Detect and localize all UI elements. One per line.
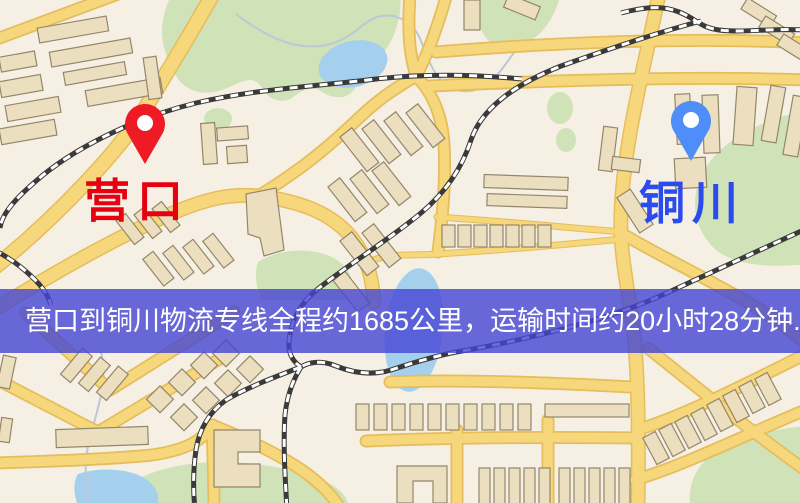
origin-pin-icon[interactable] (123, 102, 167, 166)
pin-hole (683, 112, 699, 128)
map-canvas: 营口 铜川 营口到铜川物流专线全程约1685公里，运输时间约20小时28分钟. (0, 0, 800, 503)
destination-pin-icon[interactable] (669, 99, 713, 163)
route-info-banner: 营口到铜川物流专线全程约1685公里，运输时间约20小时28分钟. (0, 289, 800, 353)
red-map-pin (125, 104, 165, 164)
route-info-text: 营口到铜川物流专线全程约1685公里，运输时间约20小时28分钟. (25, 306, 800, 336)
pin-hole (137, 115, 153, 131)
destination-city-label: 铜川 (639, 180, 745, 226)
origin-city-label: 营口 (84, 178, 190, 224)
map-artwork (0, 0, 800, 503)
blue-map-pin (671, 101, 711, 161)
